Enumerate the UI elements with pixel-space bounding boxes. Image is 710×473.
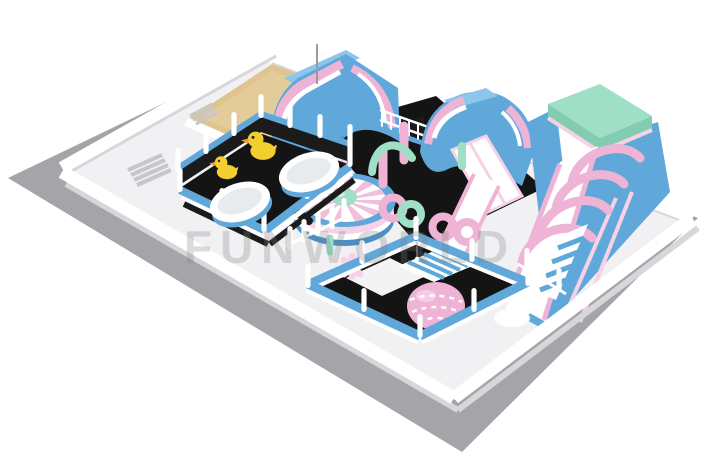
park-render-canvas: FUNWORLD	[0, 0, 710, 473]
product-render-image: FUNWORLD	[0, 0, 710, 473]
watermark-text: FUNWORLD	[184, 221, 516, 273]
